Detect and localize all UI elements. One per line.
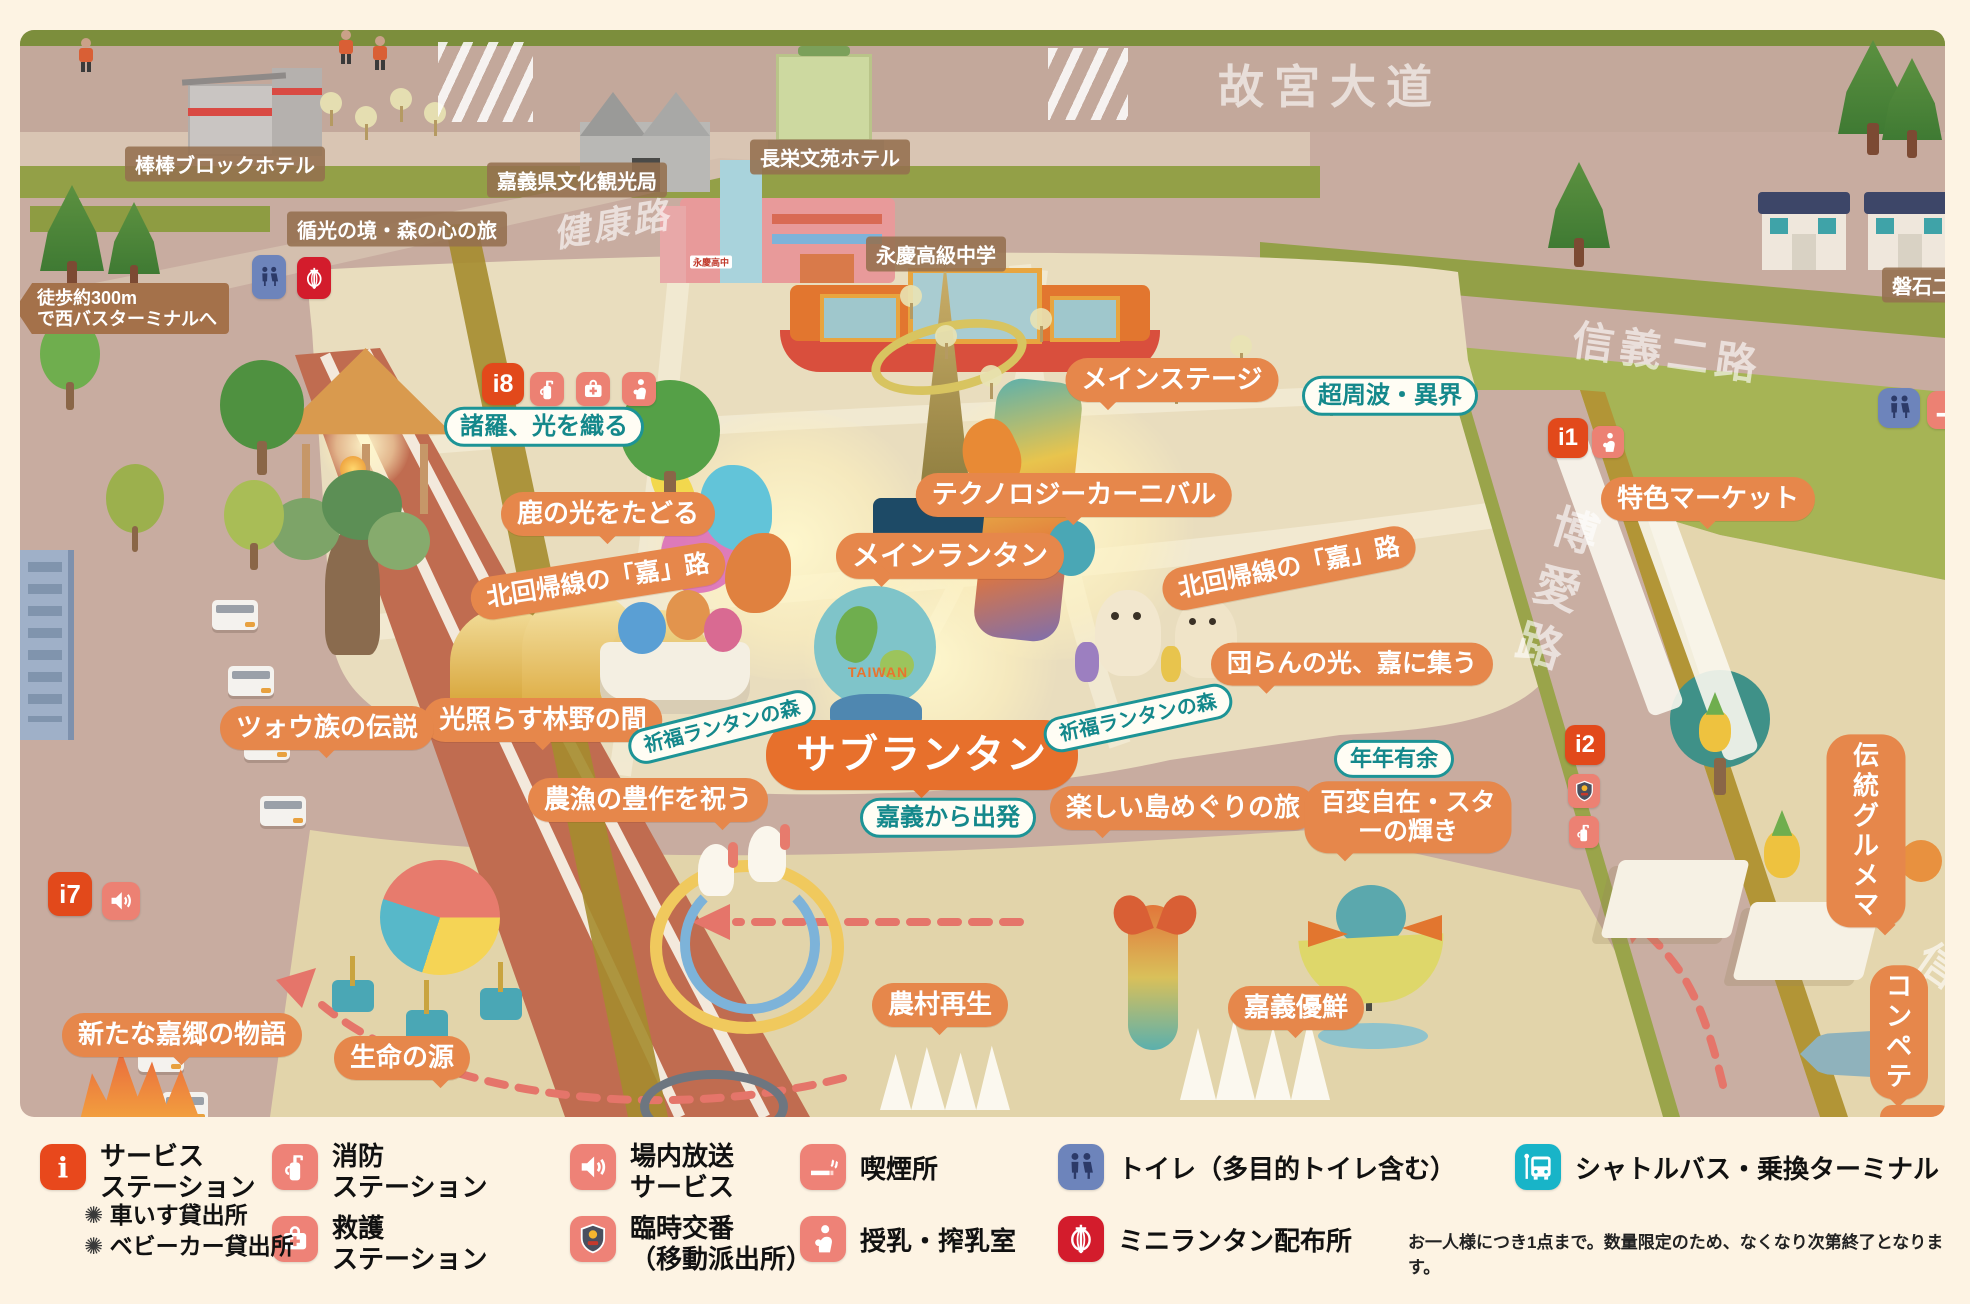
legend-note: お一人様につき1点まで。数量限定のため、なくなり次第終了となります。	[1408, 1228, 1970, 1278]
legend-rental-item: ✺ 車いす貸出所	[84, 1196, 248, 1230]
spiky-bullet-icon: ✺	[84, 1202, 110, 1228]
service-station-marker-i1: i1	[1548, 418, 1588, 458]
legend-label: ミニランタン配布所	[1118, 1226, 1352, 1257]
legend-label: 救護 ステーション	[332, 1213, 487, 1274]
spiky-bullet-icon: ✺	[84, 1233, 110, 1259]
smoking-icon	[800, 1144, 846, 1190]
legend-label: 場内放送 サービス	[630, 1141, 734, 1202]
legend-label: 消防 ステーション	[332, 1141, 487, 1202]
legend-label: 臨時交番 （移動派出所）	[630, 1213, 812, 1274]
nursing-icon	[1592, 426, 1624, 458]
firstaid-icon	[576, 372, 610, 406]
info-icon: i	[40, 1144, 86, 1190]
legend-label: 喫煙所	[860, 1154, 938, 1185]
festival-map: 故宮大道健康路信義二路博愛路信棒棒ブロックホテル嘉義県文化観光局長栄文苑ホテル永…	[20, 30, 1945, 1117]
map-markers: i8i1i2i7	[20, 30, 1945, 1117]
speaker-icon	[102, 882, 140, 920]
legend-label: トイレ（多目的トイレ含む）	[1118, 1154, 1456, 1185]
toilet-icon	[1058, 1144, 1104, 1190]
smoking-icon	[1927, 391, 1945, 429]
service-station-marker-i8: i8	[482, 363, 524, 405]
nursing-icon	[622, 372, 656, 406]
lantern-icon	[1058, 1216, 1104, 1262]
legend-label: シャトルバス・乗換ターミナル	[1575, 1154, 1939, 1185]
police-icon	[1568, 774, 1600, 808]
speaker-icon	[570, 1144, 616, 1190]
legend-rental-item: ✺ ベビーカー貸出所	[84, 1227, 294, 1261]
service-station-marker-i2: i2	[1565, 725, 1605, 765]
svg-text:i: i	[58, 1150, 69, 1184]
police-icon	[570, 1216, 616, 1262]
extinguisher-icon	[1569, 816, 1599, 848]
toilet-icon	[252, 255, 286, 299]
bus-icon	[1515, 1144, 1561, 1190]
lantern-icon	[297, 257, 331, 299]
extinguisher-icon	[530, 372, 564, 406]
toilet-icon	[1878, 388, 1920, 428]
extinguisher-icon	[272, 1144, 318, 1190]
legend-label: 授乳・搾乳室	[860, 1226, 1016, 1257]
legend-label: サービス ステーション	[100, 1141, 255, 1202]
nursing-icon	[800, 1216, 846, 1262]
festival-map-page: { "colors":{"accent_orange":"#e6874b","d…	[0, 0, 1970, 1304]
service-station-marker-i7: i7	[48, 872, 92, 916]
